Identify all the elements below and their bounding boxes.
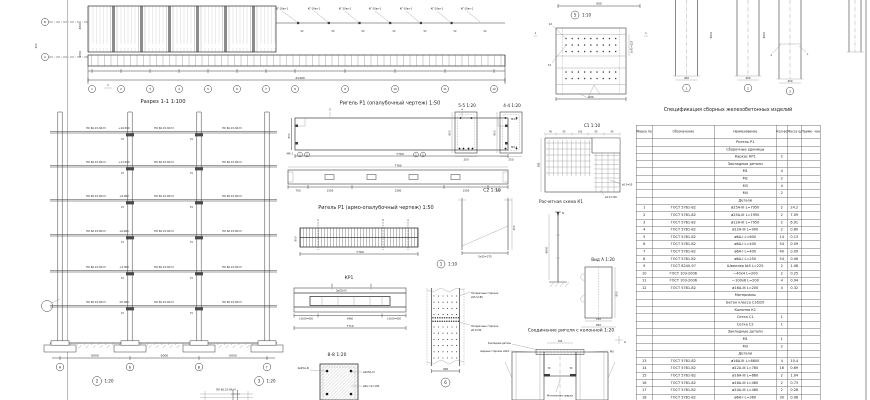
drawing-sheet: КГ-10ап-1 КГ-10ап-1 КГ-10ап-1 КГ-10ап-1 …	[0, 0, 870, 400]
spec-cell	[636, 161, 652, 168]
leader-label: 2	[770, 54, 772, 57]
kr1-caption: КР1	[345, 275, 354, 281]
spec-row: 5ГОСТ 5781-82ø6А-I L=600140.13	[636, 234, 820, 241]
spec-cell	[801, 350, 820, 357]
plan-link-label: КГ-10ап-1	[400, 8, 413, 11]
chain-dim: 5х55=275	[478, 255, 492, 259]
spec-cell: ø25А-III L=1950	[714, 212, 776, 219]
spec-cell: 40	[776, 248, 787, 255]
spec-cell	[652, 183, 714, 190]
spec-row: Бетон класса С16/20	[636, 299, 820, 306]
spec-cell: Сетка С2	[714, 321, 776, 328]
leader-label: сварные стержни 2ø16	[480, 350, 510, 353]
spec-cell	[636, 139, 652, 146]
spec-cell: ГОСТ 5781-82	[652, 387, 714, 394]
spec-cell	[801, 190, 820, 197]
spec-row: 10ГОСТ 103-2006—40х4 L=20020.25	[636, 270, 820, 277]
section-flag: 1	[407, 218, 409, 222]
beam-mark: Р1	[121, 312, 124, 315]
spec-cell: ø12А-III L=7950	[714, 219, 776, 226]
column-bubble: 3	[789, 89, 791, 93]
spec-cell	[801, 270, 820, 277]
spec-cell	[652, 197, 714, 204]
spec-row: Детали	[636, 350, 820, 357]
spec-cell: 0.80	[787, 226, 801, 233]
bar-label: 2ø25А-III	[336, 290, 347, 293]
spec-cell	[787, 307, 801, 314]
spec-table-body: Ригель Р1Сборочные единицыКаркас КР12Зак…	[636, 139, 820, 400]
slab-label: ПК 60.15-8АтV	[154, 126, 174, 130]
spec-cell: 0.09	[787, 248, 801, 255]
bottom-dim: 230	[596, 317, 601, 321]
chain-dim: 90	[563, 131, 566, 134]
spec-cell: Закладные детали	[714, 161, 776, 168]
c1-caption: С1 1:10	[584, 123, 601, 128]
spec-cell: ГОСТ 5781-82	[652, 380, 714, 387]
slab-label: ПК 60.15-8АтV	[154, 265, 174, 269]
spec-cell	[776, 350, 787, 357]
axis-bubble: А	[59, 365, 62, 369]
spec-cell: 2	[636, 212, 652, 219]
beam-mark: Р1	[190, 138, 193, 141]
section-5-5: 5-5 1:20 800 250	[448, 103, 478, 162]
spec-cell	[652, 321, 714, 328]
spec-cell	[636, 321, 652, 328]
spec-cell	[636, 336, 652, 343]
spec-cell	[787, 299, 801, 306]
spec-cell	[801, 328, 820, 335]
top-dim: 600	[596, 2, 602, 6]
spec-cell	[636, 146, 652, 153]
width-dim: 250	[464, 158, 469, 162]
spec-cell: ø12А-III L=900	[714, 226, 776, 233]
section-flag: 1	[645, 31, 647, 35]
spec-row: 7ГОСТ 5781-82ø6А-I L=400400.09	[636, 248, 820, 255]
spec-cell	[801, 387, 820, 394]
margin-dim: 1800	[78, 50, 82, 57]
spec-row: Детали	[636, 197, 820, 204]
section-flag: 1	[370, 284, 372, 288]
margin-dim: 300	[34, 43, 38, 48]
spec-cell: 7	[636, 248, 652, 255]
spec-row: 12ГОСТ 5781-82ø16А-III L=20040.32	[636, 285, 820, 292]
spec-row: Материалы	[636, 292, 820, 299]
detail-5: 600 5 1:10 12 13 3х75=225 600 1 1	[534, 2, 649, 102]
spec-cell: 3	[636, 219, 652, 226]
spec-cell: ГОСТ 5781-82	[652, 212, 714, 219]
slab-label: ПК 60.15-8АтV	[154, 300, 174, 304]
joint-caption: Соединение ригеля с колонной 1:20	[528, 327, 615, 334]
spec-cell: ГОСТ 8240-97	[652, 263, 714, 270]
plan-grid-number: 1	[91, 87, 93, 91]
spec-cell: 2	[776, 226, 787, 233]
spec-row: 1ГОСТ 5781-82ø25А-III L=7950224.2	[636, 204, 820, 211]
span-dim: 6000	[91, 354, 99, 358]
chain-dim: 100	[578, 131, 583, 134]
slab-label: ПК 60.15-8АтV	[154, 194, 174, 198]
spec-cell	[801, 168, 820, 175]
slab-label: ПК 60.15-8АтV	[222, 265, 242, 269]
gap-dim: 30	[570, 367, 573, 370]
spec-cell: М1	[714, 168, 776, 175]
spec-header: Обозначение	[652, 125, 714, 139]
spec-cell	[776, 146, 787, 153]
spec-cell	[787, 168, 801, 175]
spec-cell: Каркас КР1	[714, 153, 776, 160]
spec-cell	[801, 292, 820, 299]
spec-cell: ø6А-I L=250	[714, 256, 776, 263]
spec-cell	[801, 219, 820, 226]
spec-cell	[652, 146, 714, 153]
spec-cell: 2	[776, 380, 787, 387]
plan-v-label: У2	[454, 30, 457, 33]
plan-link-label: КГ-10ап-1	[276, 8, 289, 11]
spec-cell: 0.08	[787, 394, 801, 400]
spec-cell	[787, 190, 801, 197]
slab-label: ПК 60.15-8АтV	[86, 300, 106, 304]
spec-row: 17ГОСТ 5781-82ø10А-III L=46020.28	[636, 387, 820, 394]
scheme-caption: Расчетная схема К1	[539, 199, 583, 204]
spec-cell: 7.09	[787, 212, 801, 219]
plan-link-label: КГ-10ап-1	[339, 8, 352, 11]
rebar-label: 2ø25А-III	[363, 370, 375, 374]
spec-cell: 1.08	[787, 263, 801, 270]
width-dim: 400	[443, 367, 449, 371]
spec-cell: 16	[636, 380, 652, 387]
spec-cell	[652, 190, 714, 197]
spec-cell	[776, 299, 787, 306]
spec-cell: 0.09	[787, 241, 801, 248]
leader-label: 1	[807, 53, 809, 56]
spec-cell: 1	[776, 321, 787, 328]
building-section: Разрез 1-1 1:100 ПК 60.15-8АтV ПК 60.15-…	[42, 99, 284, 400]
chain-dim: 13х50=650	[387, 318, 402, 321]
elevation-mark: +3.300	[119, 265, 129, 269]
rebar-label: 2ø25А-III	[297, 366, 309, 370]
view-a: Вид А 1:20 800 230 850	[581, 257, 619, 327]
column-elevations: 400 1 400 2 2 1 400 3 6600 6600	[673, 0, 864, 95]
slab-label: ПК 60.15-8АтV	[86, 160, 106, 164]
beam-mark: Р1	[190, 241, 193, 244]
detail5-scale: 1:10	[582, 13, 591, 18]
spec-cell: 12	[636, 285, 652, 292]
spec-cell	[636, 197, 652, 204]
spec-cell	[652, 307, 714, 314]
spec-cell: ø12А-III L=780	[714, 365, 776, 372]
spec-cell	[801, 277, 820, 284]
spec-cell	[636, 168, 652, 175]
spec-cell	[801, 146, 820, 153]
section-flag: 5	[329, 108, 331, 112]
spec-cell: 4	[776, 168, 787, 175]
spec-cell	[652, 168, 714, 175]
spec-cell: Детали	[714, 350, 776, 357]
spec-cell: 0.28	[787, 387, 801, 394]
elevation-mark: +13.200	[118, 160, 130, 164]
spec-cell: ГОСТ 5781-82	[652, 204, 714, 211]
spec-row: 6ГОСТ 5781-82ø6А-I L=400540.09	[636, 241, 820, 248]
spec-cell: ГОСТ 5781-82	[652, 219, 714, 226]
width-dim: 400	[684, 76, 689, 80]
spec-cell	[787, 175, 801, 182]
spec-cell: 2	[776, 263, 787, 270]
spec-cell: 5	[636, 234, 652, 241]
elevation-mark: +9.900	[119, 194, 129, 198]
spec-cell: Закладные детали	[714, 328, 776, 335]
plan-v-label: У2	[332, 30, 335, 33]
spec-cell	[801, 226, 820, 233]
detail2-scale: 1:20	[105, 379, 114, 384]
rigel-armo-caption: Ригель Р1 (армо-опалубочный чертеж) 1:50	[318, 204, 433, 211]
axis-bubble: 6	[444, 380, 447, 385]
spec-cell: ГОСТ 5781-82	[652, 372, 714, 379]
height-dim: 800	[615, 291, 619, 296]
slab-label: ПК 60.15-8АтV	[222, 126, 242, 130]
spec-cell: 1	[636, 204, 652, 211]
slab-label: ПК 60.15-8АтV	[86, 229, 106, 233]
embed-mark: М4.1	[287, 152, 294, 156]
spec-cell	[636, 307, 652, 314]
spec-cell	[801, 248, 820, 255]
mesh-c2: С2 1:10 5х55=275 300	[458, 188, 516, 259]
view-mark: А	[624, 340, 627, 344]
spec-header: Приме- чание	[801, 125, 820, 139]
elevation-mark: +16.500	[118, 126, 130, 130]
force-label: N	[562, 211, 564, 215]
left-dim: 360	[538, 162, 541, 167]
bottom-dim: 850	[596, 323, 601, 327]
detail1-number: 1	[440, 262, 443, 267]
spec-cell: ø16А-III L=6600	[714, 358, 776, 365]
spec-cell	[787, 350, 801, 357]
spec-cell	[801, 365, 820, 372]
spec-cell: Сетка С1	[714, 314, 776, 321]
spec-cell	[636, 299, 652, 306]
length-dim: 7760	[396, 152, 404, 156]
spec-cell	[801, 307, 820, 314]
spec-cell	[787, 321, 801, 328]
chain-dim: 700	[296, 189, 301, 193]
spec-row: М32	[636, 343, 820, 350]
plan-link-label: КГ-10ап-1	[461, 8, 474, 11]
plan-v-label: У2	[484, 30, 487, 33]
spec-cell: 8	[636, 256, 652, 263]
spec-row: Сетка С21	[636, 321, 820, 328]
spec-cell	[652, 328, 714, 335]
spec-cell: Швеллер №5 L=225	[714, 263, 776, 270]
spec-row: Сетка С11	[636, 314, 820, 321]
spec-cell: 14	[636, 365, 652, 372]
spec-row: 8ГОСТ 5781-82ø6А-I L=250540.06	[636, 256, 820, 263]
plan-length-dim: 7760	[394, 164, 401, 168]
spec-cell	[787, 139, 801, 146]
slab-label: ПК 60.15-8АтV	[86, 194, 106, 198]
spec-cell	[652, 139, 714, 146]
spec-row: 11ГОСТ 103-2006—100х6 L=20040.94	[636, 277, 820, 284]
chain-dim: 1550	[463, 189, 470, 193]
slab-label: ПК 60.15-8АтV	[86, 126, 106, 130]
spec-cell: ø16А-III L=200	[714, 285, 776, 292]
detail2-number: 2	[96, 379, 99, 384]
leader-label: Монтажная сварка	[547, 394, 573, 398]
spec-row: 9ГОСТ 8240-97Швеллер №5 L=22521.08	[636, 263, 820, 270]
section-flag: 1	[535, 31, 537, 35]
width-dim: 400	[746, 76, 751, 80]
spec-cell	[776, 328, 787, 335]
spec-table-wrap: Марка позиц. Обозначение Наименование Ко…	[636, 125, 820, 400]
rigel-reinforcement: Ригель Р1 (армо-опалубочный чертеж) 1:50…	[294, 204, 434, 256]
spec-row: Ригель Р1	[636, 139, 820, 146]
rebar-label: ø6А-I S=100	[363, 384, 380, 388]
spec-cell	[801, 299, 820, 306]
height-dim: 800	[448, 130, 452, 135]
spec-cell	[801, 234, 820, 241]
chain-dim: 13х50=650	[299, 318, 314, 321]
spec-cell: 2	[776, 190, 787, 197]
spec-cell	[787, 292, 801, 299]
plan-grid-number: 8	[294, 87, 296, 91]
spec-cell: ГОСТ 5781-82	[652, 234, 714, 241]
leader-label: ø4 S=100	[605, 196, 617, 199]
spec-cell	[787, 197, 801, 204]
chain-dim: 40	[611, 131, 614, 134]
spec-cell: 30	[776, 394, 787, 400]
spec-cell	[636, 328, 652, 335]
plan-v-label: У2	[301, 30, 304, 33]
spec-cell: 0.94	[787, 277, 801, 284]
detail1-scale: 1:10	[448, 262, 457, 267]
spec-cell	[652, 350, 714, 357]
spec-cell: 54	[776, 241, 787, 248]
spec-row: Колонна К1	[636, 307, 820, 314]
spec-cell: ГОСТ 5781-82	[652, 248, 714, 255]
spec-cell: —40х4 L=200	[714, 270, 776, 277]
spec-row: 13ГОСТ 5781-82ø16А-III L=6600410.4	[636, 358, 820, 365]
spec-cell: 54	[776, 256, 787, 263]
spec-cell: Материалы	[714, 292, 776, 299]
plan-grid-number: 6	[236, 87, 238, 91]
spec-cell	[787, 153, 801, 160]
width-dim: 250	[509, 158, 514, 162]
spec-cell: 2	[776, 212, 787, 219]
section-flag: 1	[317, 218, 319, 222]
c2-caption: С2 1:10	[483, 188, 501, 194]
beam-mark: Р1	[190, 277, 193, 280]
spec-cell: 0.25	[787, 270, 801, 277]
spec-cell	[652, 299, 714, 306]
spec-cell	[787, 343, 801, 350]
leader-label: 13	[548, 63, 552, 67]
spec-cell: ГОСТ 5781-82	[652, 358, 714, 365]
top-dim: 100	[558, 340, 563, 343]
spec-cell	[787, 336, 801, 343]
spec-cell	[801, 256, 820, 263]
spec-row: Каркас КР12	[636, 153, 820, 160]
plan-link-label: КГ-10ап-1	[369, 8, 382, 11]
spec-cell: 1.04	[787, 372, 801, 379]
plan-v-label: У2	[424, 30, 427, 33]
spec-cell	[801, 153, 820, 160]
height-dim: 800	[294, 236, 298, 241]
spec-cell	[776, 139, 787, 146]
spec-row: Сборочные единицы	[636, 146, 820, 153]
length-dim: 7760	[356, 250, 364, 254]
spec-cell	[652, 153, 714, 160]
slab-label: ПК 60.15-8АтV	[154, 229, 174, 233]
slab-label: ПК 60.15-8АтV	[222, 300, 242, 304]
spec-cell: ГОСТ 103-2006	[652, 277, 714, 284]
spec-cell	[652, 343, 714, 350]
column-bubble: 2	[747, 86, 749, 90]
slab-label: ПК 60.15-8АтV	[222, 194, 242, 198]
spec-row: М42	[636, 190, 820, 197]
spec-cell	[636, 175, 652, 182]
leader-label: 2ø5 S=80	[471, 296, 483, 299]
leader-label: 12	[549, 22, 553, 26]
plan-grid-number: 2	[120, 87, 122, 91]
axis-bubble: Г	[266, 365, 268, 369]
spec-cell	[801, 139, 820, 146]
spec-cell: ГОСТ 103-2006	[652, 270, 714, 277]
spec-cell	[636, 343, 652, 350]
spec-cell: 11	[636, 277, 652, 284]
elevation-mark: ±0.000	[119, 300, 129, 304]
spec-row: 3ГОСТ 5781-82ø12А-III L=795026.91	[636, 219, 820, 226]
leader-label: ø5 S=50	[622, 184, 633, 187]
spec-cell: ø16А-III L=460	[714, 380, 776, 387]
spec-cell: 4	[776, 358, 787, 365]
rigel-form-caption: Ригель Р1 (опалубочный чертеж) 1:50	[340, 100, 441, 107]
elevation-mark: +6.600	[119, 229, 129, 233]
sec88-caption: 8-8 1:20	[328, 352, 347, 358]
spec-cell	[801, 321, 820, 328]
spec-cell	[787, 146, 801, 153]
spec-row: Закладные детали	[636, 161, 820, 168]
spec-cell: М1	[714, 336, 776, 343]
spec-cell: ø25А-III L=7950	[714, 204, 776, 211]
spec-cell: ГОСТ 5781-82	[652, 226, 714, 233]
beam-column-joint: Соединение ригеля с колонной 1:20 А 100 …	[480, 327, 627, 400]
spec-cell: 2	[776, 343, 787, 350]
spec-cell: ГОСТ 5781-82	[652, 241, 714, 248]
spec-cell: 6	[636, 241, 652, 248]
spec-cell	[636, 350, 652, 357]
spec-cell: Детали	[714, 197, 776, 204]
column-bubble: 1	[686, 86, 688, 90]
height-dim: 6600	[762, 31, 766, 38]
spec-cell	[636, 183, 652, 190]
spec-row: М11	[636, 336, 820, 343]
spec-cell	[652, 336, 714, 343]
spec-cell: 2	[776, 153, 787, 160]
slab-label: ПК 60.15-8АтV	[222, 229, 242, 233]
section-caption: Разрез 1-1 1:100	[140, 99, 185, 105]
spec-row: М22	[636, 175, 820, 182]
spec-cell	[787, 328, 801, 335]
section-8-8: 8-8 1:20 2ø25А-III 2ø25А-III ø6А-I S=100	[297, 352, 379, 400]
leader-label: Поперечные стержни	[471, 325, 499, 328]
plan-v-label: У2	[362, 30, 365, 33]
spec-cell	[801, 343, 820, 350]
spec-header: Масса ед., кг	[787, 125, 801, 139]
spec-cell: —100х6 L=200	[714, 277, 776, 284]
spec-cell: 0.13	[787, 234, 801, 241]
span-dim: 6000	[161, 354, 169, 358]
spec-cell: 24.2	[787, 204, 801, 211]
spec-cell	[801, 336, 820, 343]
spec-cell: ГОСТ 5781-82	[652, 394, 714, 400]
spec-cell: 2	[776, 270, 787, 277]
